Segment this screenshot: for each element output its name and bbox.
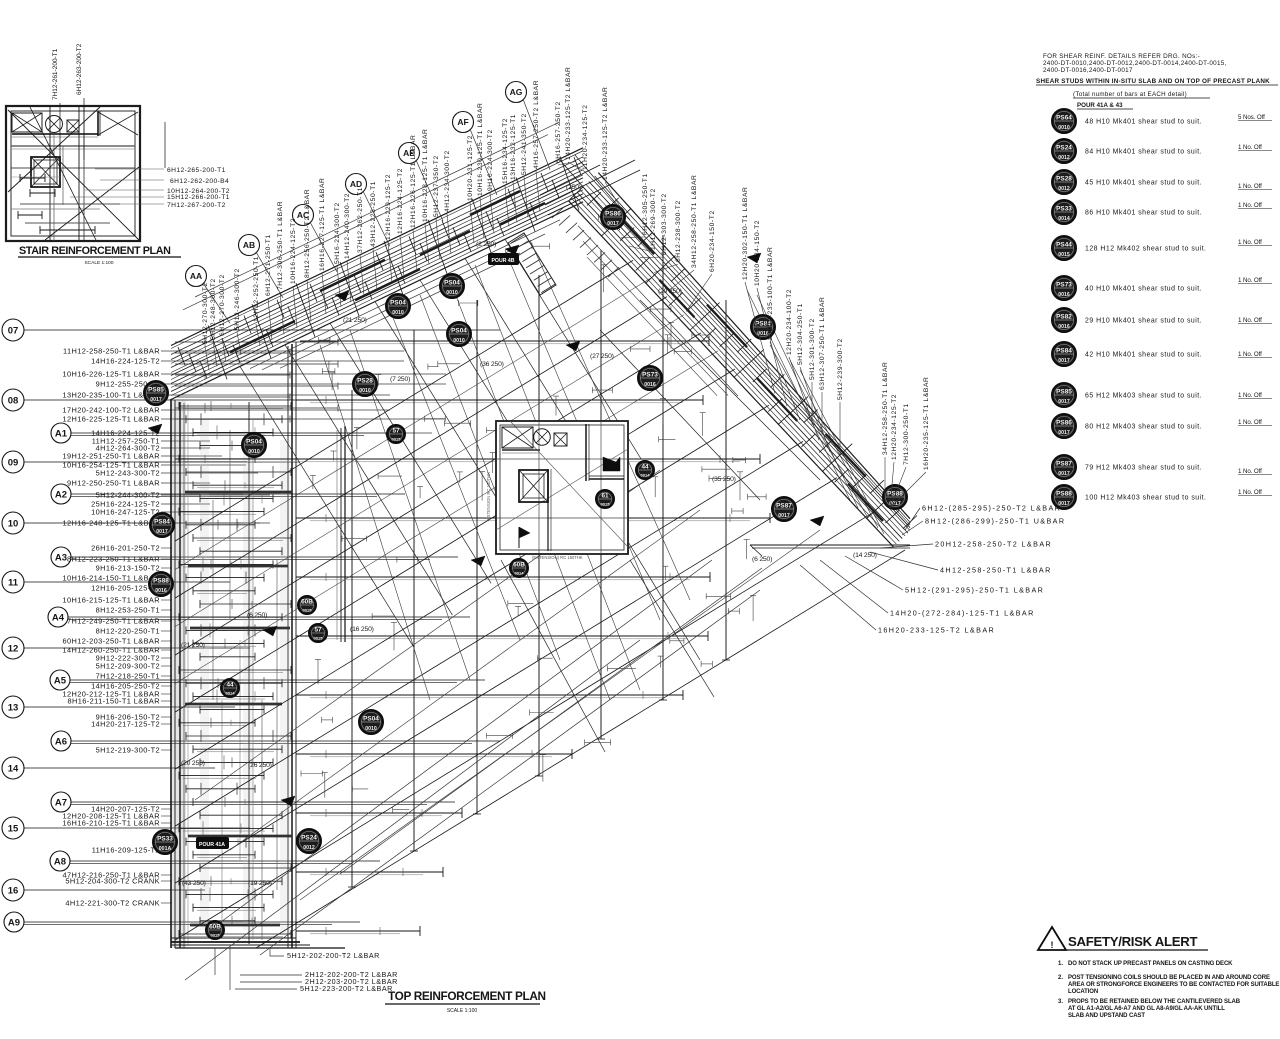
svg-text:0010: 0010 (248, 449, 260, 455)
svg-text:1 No. Off: 1 No. Off (1238, 392, 1262, 399)
svg-text:(6 250): (6 250) (752, 556, 772, 563)
svg-text:5H12-204-300-T2 CRANK: 5H12-204-300-T2 CRANK (65, 876, 160, 885)
svg-text:13H16-232-125-T1: 13H16-232-125-T1 (510, 114, 517, 180)
svg-text:14H20-233-125-T2 L&BAR: 14H20-233-125-T2 L&BAR (565, 67, 572, 161)
svg-text:LOCATION: LOCATION (1068, 989, 1098, 995)
svg-text:10H16-247-125-T2: 10H16-247-125-T2 (91, 507, 160, 516)
svg-text:86 H10 Mk401 shear stud to sui: 86 H10 Mk401 shear stud to suit. (1085, 209, 1202, 216)
svg-text:16: 16 (8, 885, 19, 896)
svg-text:5H12-241-350-T2: 5H12-241-350-T2 (521, 113, 528, 175)
svg-text:PS87: PS87 (1056, 461, 1072, 468)
svg-text:AA: AA (190, 271, 202, 281)
svg-text:001A: 001A (159, 846, 172, 852)
svg-text:6H12-262-200-B4: 6H12-262-200-B4 (170, 178, 229, 185)
svg-text:0017: 0017 (607, 221, 619, 227)
svg-text:A6: A6 (55, 736, 67, 747)
svg-text:80 H12 Mk403 shear stud to sui: 80 H12 Mk403 shear stud to suit. (1085, 423, 1202, 430)
svg-text:PS28: PS28 (357, 378, 373, 385)
svg-text:PS04: PS04 (390, 300, 406, 307)
svg-text:4H12-258-250-T1 L&BAR: 4H12-258-250-T1 L&BAR (940, 565, 1052, 574)
svg-text:44: 44 (641, 464, 649, 471)
svg-text:10H20-231-125-T2: 10H20-231-125-T2 (467, 135, 474, 201)
svg-text:57: 57 (314, 627, 322, 634)
svg-text:0017: 0017 (1058, 358, 1070, 364)
svg-text:11H12-258-250-T1 L&BAR: 11H12-258-250-T1 L&BAR (63, 346, 160, 355)
svg-text:1H12-269-300-T2: 1H12-269-300-T2 (650, 188, 657, 250)
svg-text:8H16-211-150-T1 L&BAR: 8H16-211-150-T1 L&BAR (68, 696, 160, 705)
svg-text:A9: A9 (8, 917, 20, 928)
svg-text:8H12-220-250-T1: 8H12-220-250-T1 (96, 626, 160, 635)
svg-text:(19 250): (19 250) (248, 880, 272, 887)
svg-text:A5: A5 (54, 675, 67, 686)
svg-text:5H16-224-300-T2: 5H16-224-300-T2 (334, 202, 341, 264)
svg-text:14H20-233-125-T2 L&BAR: 14H20-233-125-T2 L&BAR (602, 87, 609, 181)
svg-text:(21 250): (21 250) (181, 642, 205, 649)
svg-text:6H12-263-200-T2: 6H12-263-200-T2 (76, 43, 83, 95)
svg-text:61: 61 (601, 493, 609, 500)
svg-text:1 No. Off: 1 No. Off (1238, 183, 1262, 190)
svg-text:5H12-202-200-T2 L&BAR: 5H12-202-200-T2 L&BAR (287, 951, 380, 960)
svg-text:13: 13 (8, 702, 19, 713)
svg-text:60B: 60B (513, 562, 525, 569)
svg-text:10H16-215-125-T1 L&BAR: 10H16-215-125-T1 L&BAR (62, 595, 160, 604)
svg-text:15: 15 (8, 823, 19, 834)
svg-text:STAIR REINFORCEMENT PLAN: STAIR REINFORCEMENT PLAN (19, 245, 171, 257)
svg-text:0016: 0016 (644, 382, 656, 388)
svg-text:8H12-(286-299)-250-T1 U&BAR: 8H12-(286-299)-250-T1 U&BAR (925, 516, 1065, 525)
svg-text:PS04: PS04 (246, 439, 262, 446)
svg-text:0010: 0010 (392, 310, 404, 316)
svg-text:7H12-249-250-T1 L&BAR: 7H12-249-250-T1 L&BAR (67, 616, 160, 625)
svg-text:SHEAR STUDS WITHIN IN-SITU SLA: SHEAR STUDS WITHIN IN-SITU SLAB AND ON T… (1036, 78, 1270, 85)
svg-text:63H12-307-250-T1 L&BAR: 63H12-307-250-T1 L&BAR (819, 297, 826, 391)
svg-text:4H12-221-300-T2 CRANK: 4H12-221-300-T2 CRANK (65, 898, 160, 907)
svg-text:PS24: PS24 (301, 835, 317, 842)
svg-text:6H12-270-300-T2: 6H12-270-300-T2 (219, 274, 226, 336)
svg-text:5H12-243-300-T2: 5H12-243-300-T2 (96, 468, 160, 477)
svg-text:0017: 0017 (1058, 471, 1070, 477)
svg-text:5H12-209-300-T2: 5H12-209-300-T2 (96, 661, 160, 670)
svg-text:15H12-266-200-T1: 15H12-266-200-T1 (167, 194, 230, 201)
svg-text:1 No. Off: 1 No. Off (1238, 202, 1262, 209)
svg-text:0014: 0014 (1058, 216, 1070, 222)
svg-text:0017: 0017 (156, 529, 168, 535)
svg-text:60B: 60B (301, 599, 313, 606)
svg-text:PS64: PS64 (1056, 115, 1072, 122)
svg-text:12H16-229-125-T2: 12H16-229-125-T2 (385, 174, 392, 240)
svg-text:48 H10 Mk401 shear stud to sui: 48 H10 Mk401 shear stud to suit. (1085, 118, 1202, 125)
svg-text:POST TENSIONING COILS SHOULD B: POST TENSIONING COILS SHOULD BE PLACED I… (1068, 975, 1270, 981)
svg-text:PS85: PS85 (148, 387, 164, 394)
svg-text:0012: 0012 (303, 845, 315, 851)
svg-text:0012: 0012 (1058, 155, 1070, 161)
svg-text:PS73: PS73 (642, 372, 658, 379)
svg-text:A8: A8 (54, 856, 66, 867)
svg-text:5H12-219-300-T2: 5H12-219-300-T2 (96, 745, 160, 754)
svg-text:(43 250): (43 250) (182, 880, 206, 887)
svg-text:SAFETY/RISK ALERT: SAFETY/RISK ALERT (1068, 934, 1197, 949)
svg-text:EXTENSION RC 150THK: EXTENSION RC 150THK (486, 472, 491, 520)
svg-text:10H16-214-150-T1 L&BAR: 10H16-214-150-T1 L&BAR (62, 573, 160, 582)
svg-text:AG: AG (510, 87, 523, 97)
svg-text:PS84: PS84 (154, 519, 170, 526)
svg-text:1 No. Off: 1 No. Off (1238, 277, 1262, 284)
svg-text:84 H10 Mk401 shear stud to sui: 84 H10 Mk401 shear stud to suit. (1085, 148, 1202, 155)
svg-text:45 H10 Mk401 shear stud to sui: 45 H10 Mk401 shear stud to suit. (1085, 179, 1202, 186)
svg-text:6H12-305-250-T1: 6H12-305-250-T1 (642, 173, 649, 235)
svg-text:0012: 0012 (1058, 186, 1070, 192)
svg-text:14H12-240-300-T2: 14H12-240-300-T2 (344, 193, 351, 259)
svg-text:6H12-238-300-T2: 6H12-238-300-T2 (675, 200, 682, 262)
svg-text:0015: 0015 (1058, 252, 1070, 258)
svg-text:PS82: PS82 (1056, 314, 1072, 321)
svg-text:0015: 0015 (391, 437, 401, 442)
svg-text:!: ! (1051, 940, 1054, 950)
svg-text:10H20-234-150-T2: 10H20-234-150-T2 (754, 220, 761, 286)
svg-text:PS86: PS86 (1056, 420, 1072, 427)
svg-text:5H12-239-300-T2: 5H12-239-300-T2 (837, 338, 844, 400)
svg-text:1 No. Off: 1 No. Off (1238, 239, 1262, 246)
svg-text:5H12-223-200-T2 L&BAR: 5H12-223-200-T2 L&BAR (300, 984, 393, 993)
svg-text:0014: 0014 (640, 473, 650, 478)
svg-text:14H20-217-125-T2: 14H20-217-125-T2 (91, 719, 160, 728)
svg-text:5H12-237-350-T2: 5H12-237-350-T2 (433, 155, 440, 217)
svg-text:10H16-226-125-T1 L&BAR: 10H16-226-125-T1 L&BAR (62, 369, 160, 378)
svg-text:0010: 0010 (453, 338, 465, 344)
svg-text:0014: 0014 (514, 571, 524, 576)
svg-text:43H12-223-250-T1: 43H12-223-250-T1 (370, 181, 377, 247)
svg-text:40 H10 Mk401 shear stud to sui: 40 H10 Mk401 shear stud to suit. (1085, 285, 1202, 292)
svg-text:12H20-234-125-T2: 12H20-234-125-T2 (891, 394, 898, 460)
svg-text:12H16-224-125-T2: 12H16-224-125-T2 (397, 168, 404, 234)
svg-text:PS04: PS04 (444, 280, 460, 287)
svg-text:A1: A1 (55, 428, 68, 439)
svg-text:0010: 0010 (365, 726, 377, 732)
svg-text:6H16-257-250-T2: 6H16-257-250-T2 (555, 101, 562, 163)
svg-text:1.: 1. (1058, 961, 1063, 967)
svg-text:0016: 0016 (1058, 324, 1070, 330)
svg-text:(16 250): (16 250) (350, 626, 374, 633)
svg-text:8H12-253-250-T1: 8H12-253-250-T1 (96, 605, 160, 614)
svg-text:0016: 0016 (1058, 292, 1070, 298)
svg-text:PS33: PS33 (157, 836, 173, 843)
svg-text:3.: 3. (1058, 999, 1063, 1005)
svg-text:7H12-267-200-T2: 7H12-267-200-T2 (167, 202, 226, 209)
svg-text:0017: 0017 (1058, 430, 1070, 436)
svg-text:16H20-235-125-T1 L&BAR: 16H20-235-125-T1 L&BAR (923, 377, 930, 471)
svg-text:(27 250): (27 250) (590, 353, 614, 360)
svg-text:1 No. Off: 1 No. Off (1238, 419, 1262, 426)
svg-text:(26 250): (26 250) (248, 762, 272, 769)
svg-text:5H12-304-250-T1: 5H12-304-250-T1 (797, 303, 804, 365)
svg-text:A3: A3 (55, 552, 67, 563)
svg-text:09: 09 (8, 457, 19, 468)
svg-text:POUR 41A: POUR 41A (199, 842, 225, 848)
svg-text:(Total number of bars at EACH: (Total number of bars at EACH detail) (1073, 91, 1187, 98)
svg-text:34H12-258-250-T1 L&BAR: 34H12-258-250-T1 L&BAR (691, 175, 698, 269)
svg-text:FOR SHEAR REINF. DETAILS REFER: FOR SHEAR REINF. DETAILS REFER DRG. NOs:… (1043, 53, 1200, 60)
svg-text:16H16-227-125-T1 L&BAR: 16H16-227-125-T1 L&BAR (319, 178, 326, 272)
svg-text:6H12-271-250-T1: 6H12-271-250-T1 (265, 234, 272, 296)
svg-text:7H12-300-250-T1: 7H12-300-250-T1 (903, 403, 910, 465)
svg-text:14H20-(272-284)-125-T1 L&BAR: 14H20-(272-284)-125-T1 L&BAR (890, 608, 1035, 617)
svg-text:42 H10 Mk401 shear stud to sui: 42 H10 Mk401 shear stud to suit. (1085, 351, 1202, 358)
svg-text:0014: 0014 (225, 691, 235, 696)
svg-text:10H16-224-125-T2: 10H16-224-125-T2 (290, 218, 297, 284)
svg-text:DO NOT STACK UP PRECAST PANELS: DO NOT STACK UP PRECAST PANELS ON CASTIN… (1068, 961, 1233, 967)
svg-text:1 No. Off: 1 No. Off (1238, 489, 1262, 496)
svg-text:19H12-251-250-T1 L&BAR: 19H12-251-250-T1 L&BAR (62, 451, 160, 460)
svg-text:14H16-224-125-T2: 14H16-224-125-T2 (91, 356, 160, 365)
svg-text:0015: 0015 (313, 636, 323, 641)
svg-text:12H12-252-250-T1: 12H12-252-250-T1 (253, 256, 260, 322)
svg-text:44: 44 (226, 682, 234, 689)
svg-text:12H16-248-125-T1 L&BAR: 12H16-248-125-T1 L&BAR (62, 518, 160, 527)
svg-text:60H12-203-250-T1 L&BAR: 60H12-203-250-T1 L&BAR (62, 636, 160, 645)
svg-text:PS87: PS87 (776, 503, 792, 510)
svg-text:9H12-250-250-T1 L&BAR: 9H12-250-250-T1 L&BAR (67, 478, 160, 487)
svg-text:5H12-244-300-T2: 5H12-244-300-T2 (96, 490, 160, 499)
svg-text:65 H12 Mk403 shear stud to sui: 65 H12 Mk403 shear stud to suit. (1085, 392, 1202, 399)
svg-text:POUR 4B: POUR 4B (491, 258, 514, 264)
svg-text:0015: 0015 (302, 608, 312, 613)
svg-text:12H16-225-125-T1 L&BAR: 12H16-225-125-T1 L&BAR (62, 414, 160, 423)
svg-text:11H20-234-125-T2: 11H20-234-125-T2 (582, 104, 589, 170)
svg-text:(36 250): (36 250) (480, 361, 504, 368)
svg-text:2400-DT-0010,2400-DT-0012,2400: 2400-DT-0010,2400-DT-0012,2400-DT-0014,2… (1043, 60, 1227, 67)
svg-text:AREA OR STRONGFORCE ENGINEERS: AREA OR STRONGFORCE ENGINEERS TO BE CONT… (1068, 982, 1279, 988)
svg-text:PS28: PS28 (1056, 176, 1072, 183)
svg-text:15H16-234-125-T2: 15H16-234-125-T2 (502, 118, 509, 184)
svg-text:4H12-234-300-T2: 4H12-234-300-T2 (444, 150, 451, 212)
svg-text:PS04: PS04 (363, 716, 379, 723)
svg-text:5H12-(291-295)-250-T1 L&BAR: 5H12-(291-295)-250-T1 L&BAR (905, 585, 1044, 594)
svg-text:PS88: PS88 (153, 578, 169, 585)
svg-text:0017: 0017 (778, 513, 790, 519)
svg-text:6H12-265-200-T1: 6H12-265-200-T1 (167, 167, 226, 174)
svg-text:16H16-210-125-T1 L&BAR: 16H16-210-125-T1 L&BAR (62, 818, 160, 827)
svg-text:PS88: PS88 (1056, 491, 1072, 498)
svg-text:SCALE 1:100: SCALE 1:100 (84, 260, 113, 266)
svg-text:(14 250): (14 250) (853, 552, 877, 559)
svg-text:PS44: PS44 (1056, 242, 1072, 249)
svg-text:8H12-256-250-T2 L&BAR: 8H12-256-250-T2 L&BAR (304, 189, 311, 278)
svg-text:57: 57 (392, 428, 400, 435)
svg-text:9H16-224-300-T2: 9H16-224-300-T2 (487, 129, 494, 191)
svg-text:(7 250): (7 250) (390, 376, 410, 383)
svg-text:128 H12 Mk402 shear stud to su: 128 H12 Mk402 shear stud to suit. (1085, 245, 1206, 252)
svg-text:A4: A4 (52, 612, 65, 623)
svg-text:PS85: PS85 (1056, 389, 1072, 396)
svg-text:(250): (250) (566, 184, 581, 191)
svg-text:0010: 0010 (446, 290, 458, 296)
svg-text:0017: 0017 (1058, 501, 1070, 507)
svg-text:7H12-218-250-T1: 7H12-218-250-T1 (96, 671, 160, 680)
svg-text:1 No. Off: 1 No. Off (1238, 317, 1262, 324)
svg-text:08: 08 (8, 395, 19, 406)
svg-text:12H20-302-150-T1 L&BAR: 12H20-302-150-T1 L&BAR (742, 187, 749, 281)
svg-text:1 No. Off: 1 No. Off (1238, 144, 1262, 151)
svg-text:6H12-303-300-T2: 6H12-303-300-T2 (661, 193, 668, 255)
svg-text:8H12-223-250-T1 L&BAR: 8H12-223-250-T1 L&BAR (67, 554, 160, 563)
svg-text:6H20-234-150-T2: 6H20-234-150-T2 (709, 210, 716, 272)
svg-text:12H16-226-125-T1 L&BAR: 12H16-226-125-T1 L&BAR (410, 135, 417, 229)
svg-text:AB: AB (243, 240, 255, 250)
svg-text:(6 250): (6 250) (247, 612, 267, 619)
svg-text:17H20-242-100-T2 L&BAR: 17H20-242-100-T2 L&BAR (62, 405, 160, 414)
svg-text:2.: 2. (1058, 975, 1063, 981)
svg-text:5H12-246-300-T2: 5H12-246-300-T2 (234, 268, 241, 330)
svg-text:10: 10 (8, 518, 19, 529)
svg-text:100 H12 Mk403 shear stud to su: 100 H12 Mk403 shear stud to suit. (1085, 494, 1206, 501)
svg-text:AF: AF (457, 117, 468, 127)
svg-text:0015: 0015 (600, 502, 610, 507)
svg-text:0016: 0016 (155, 588, 167, 594)
svg-text:(29 250): (29 250) (658, 288, 682, 295)
svg-text:PS73: PS73 (1056, 282, 1072, 289)
svg-text:5H12-248-300-T2: 5H12-248-300-T2 (210, 278, 217, 340)
svg-text:11: 11 (8, 577, 19, 588)
svg-text:29 H10 Mk401 shear stud to sui: 29 H10 Mk401 shear stud to suit. (1085, 317, 1202, 324)
svg-text:PS33: PS33 (1056, 206, 1072, 213)
svg-text:0010: 0010 (1058, 125, 1070, 131)
svg-text:11H16-209-125-T2: 11H16-209-125-T2 (92, 845, 160, 854)
svg-text:26H16-201-250-T2: 26H16-201-250-T2 (91, 543, 160, 552)
svg-text:PROPS TO BE RETAINED BELOW THE: PROPS TO BE RETAINED BELOW THE CANTILEVE… (1068, 999, 1241, 1005)
svg-text:1 No. Off: 1 No. Off (1238, 468, 1262, 475)
svg-text:34H12-258-250-T1 L&BAR: 34H12-258-250-T1 L&BAR (882, 362, 889, 456)
svg-text:12: 12 (8, 643, 19, 654)
svg-text:16H20-233-125-T2 L&BAR: 16H20-233-125-T2 L&BAR (878, 625, 995, 634)
svg-text:PS84: PS84 (1056, 348, 1072, 355)
svg-text:0010: 0010 (359, 388, 371, 394)
svg-text:37H12-262-250-T1: 37H12-262-250-T1 (357, 187, 364, 253)
svg-text:SLAB AND UPSTAND CAST: SLAB AND UPSTAND CAST (1068, 1013, 1145, 1019)
svg-text:PS04: PS04 (451, 328, 467, 335)
svg-text:POUR 41A & 43: POUR 41A & 43 (1077, 102, 1123, 109)
svg-text:6H12-(285-295)-250-T2 L&BAR: 6H12-(285-295)-250-T2 L&BAR (922, 503, 1061, 512)
svg-text:20H20-235-100-T1 L&BAR: 20H20-235-100-T1 L&BAR (767, 247, 774, 341)
svg-text:7H12-306-250-T1 L&BAR: 7H12-306-250-T1 L&BAR (277, 201, 284, 290)
svg-text:60B: 60B (209, 924, 221, 931)
svg-text:2400-DT-0016,2400-DT-0017: 2400-DT-0016,2400-DT-0017 (1043, 67, 1133, 74)
svg-text:5H12-301-300-T2: 5H12-301-300-T2 (809, 318, 816, 380)
svg-text:0017: 0017 (1058, 399, 1070, 405)
svg-text:A2: A2 (55, 489, 67, 500)
svg-text:07: 07 (8, 325, 19, 336)
svg-text:(EXTENSION) RC 150THK: (EXTENSION) RC 150THK (532, 555, 583, 560)
svg-text:0017: 0017 (150, 397, 162, 403)
svg-text:PS24: PS24 (1056, 145, 1072, 152)
svg-text:12H20-234-100-T2: 12H20-234-100-T2 (786, 289, 793, 355)
svg-text:A7: A7 (55, 797, 67, 808)
svg-text:4H16-257-250-T2 L&BAR: 4H16-257-250-T2 L&BAR (533, 80, 540, 169)
svg-text:(35 250): (35 250) (712, 476, 736, 483)
svg-text:(20 250): (20 250) (181, 760, 205, 767)
svg-text:TOP REINFORCEMENT PLAN: TOP REINFORCEMENT PLAN (388, 989, 546, 1003)
svg-text:SCALE 1:100: SCALE 1:100 (447, 1008, 478, 1014)
svg-text:1 No. Off: 1 No. Off (1238, 351, 1262, 358)
svg-text:(2 250): (2 250) (476, 241, 496, 248)
svg-text:PS86: PS86 (605, 211, 621, 218)
svg-text:10H16-228-125-T1 L&BAR: 10H16-228-125-T1 L&BAR (422, 129, 429, 223)
svg-text:10H16-230-125-T1 L&BAR: 10H16-230-125-T1 L&BAR (477, 103, 484, 197)
svg-text:5H12-270-300-T2: 5H12-270-300-T2 (202, 282, 209, 344)
svg-text:7H12-261-200-T1: 7H12-261-200-T1 (52, 48, 59, 100)
svg-text:20H12-258-250-T2 L&BAR: 20H12-258-250-T2 L&BAR (935, 539, 1052, 548)
svg-text:79 H12 Mk403 shear stud to sui: 79 H12 Mk403 shear stud to suit. (1085, 464, 1202, 471)
svg-text:9H16-213-150-T2: 9H16-213-150-T2 (96, 563, 160, 572)
svg-text:0015: 0015 (210, 933, 220, 938)
svg-text:(21 250): (21 250) (343, 317, 367, 324)
svg-text:14: 14 (8, 763, 19, 774)
svg-text:AT GL A1-A2/GL A6-A7 AND GL A8: AT GL A1-A2/GL A6-A7 AND GL A8-A9/GL AA-… (1068, 1006, 1225, 1012)
svg-text:5 Nos. Off: 5 Nos. Off (1238, 114, 1265, 121)
